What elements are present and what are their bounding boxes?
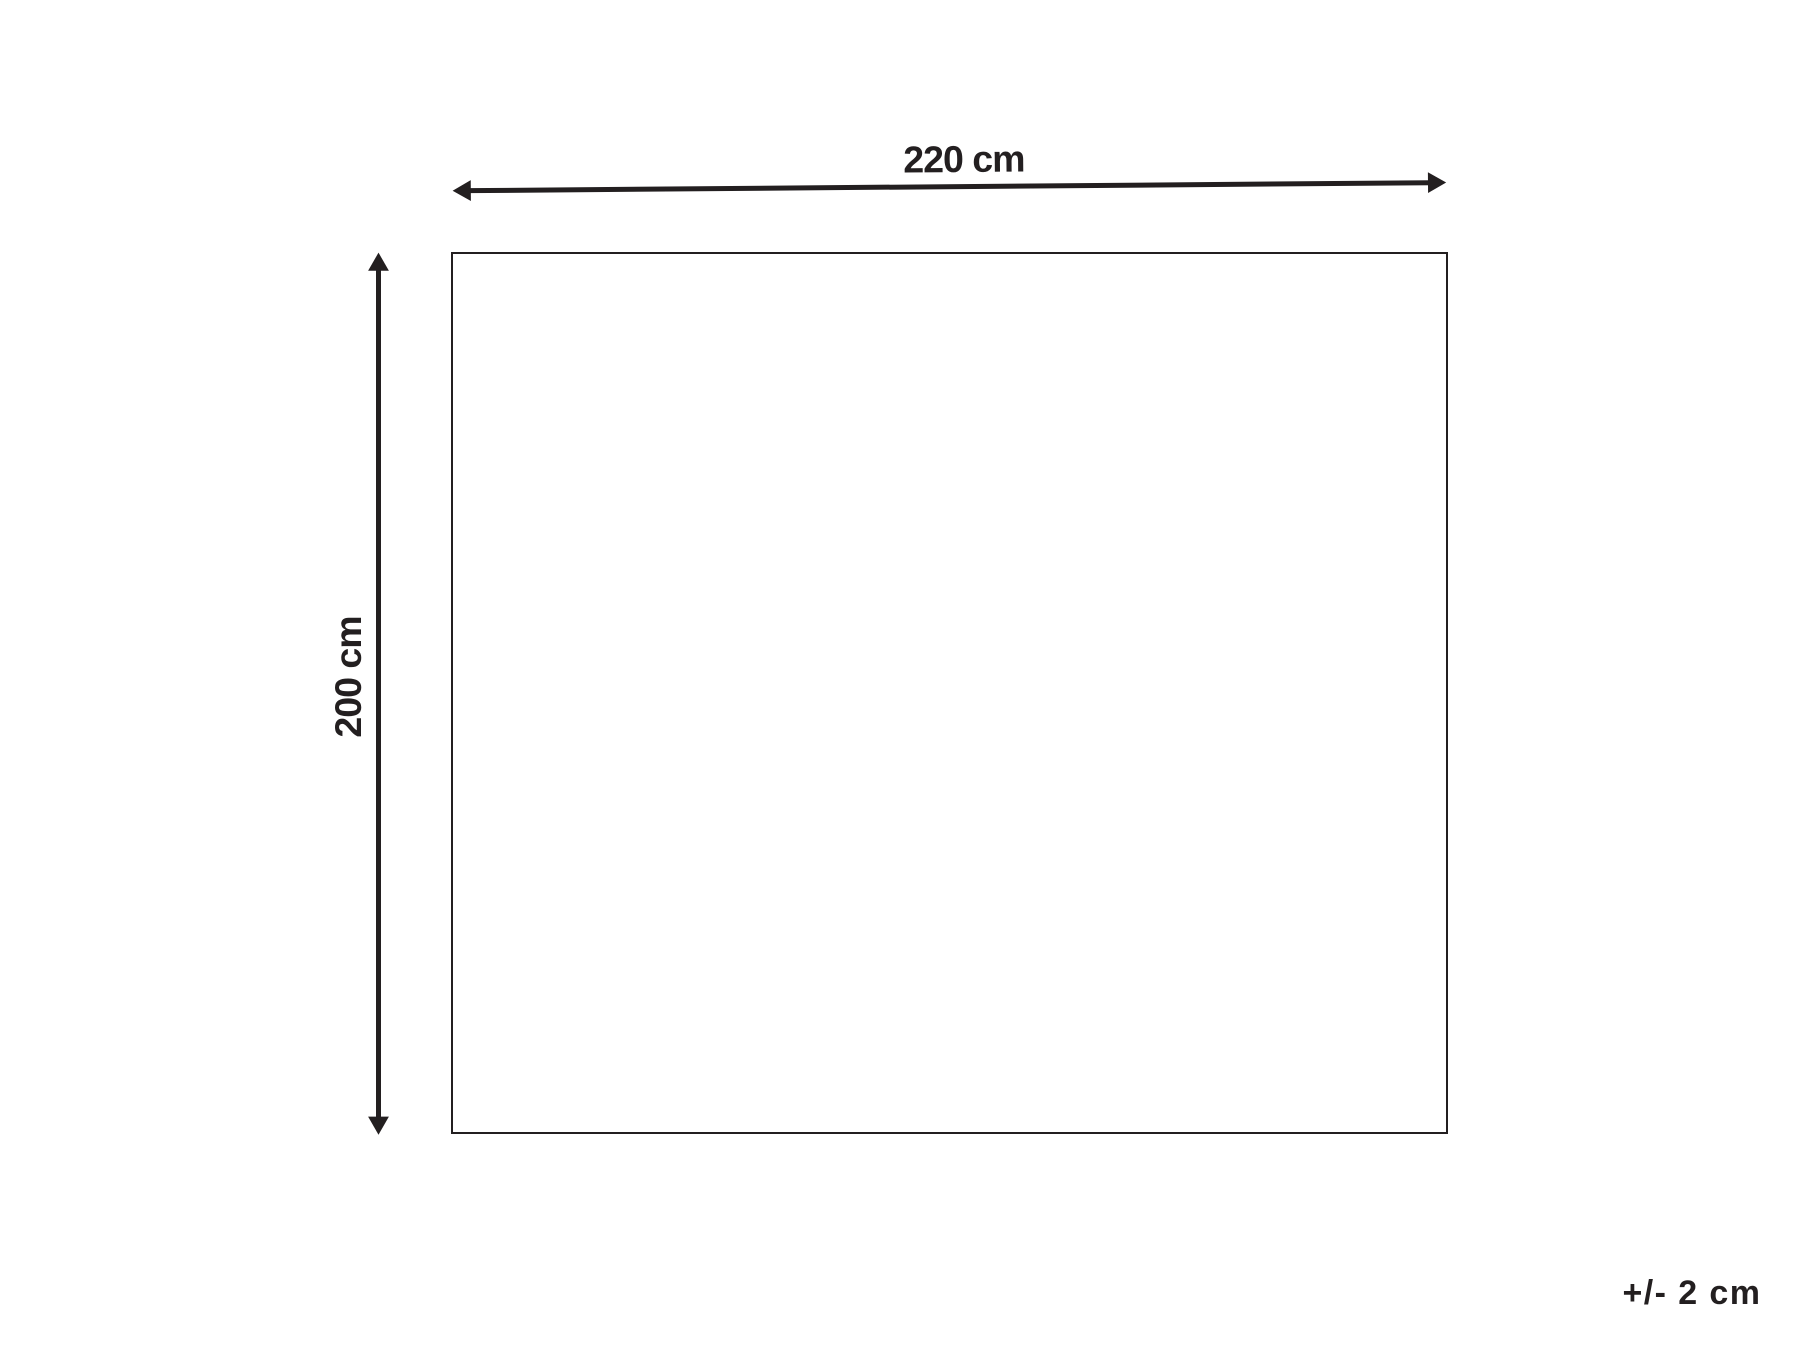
svg-text:+/- 2 cm: +/- 2 cm (1623, 1274, 1761, 1312)
svg-text:220 cm: 220 cm (903, 137, 1025, 180)
svg-text:200 cm: 200 cm (327, 616, 369, 737)
